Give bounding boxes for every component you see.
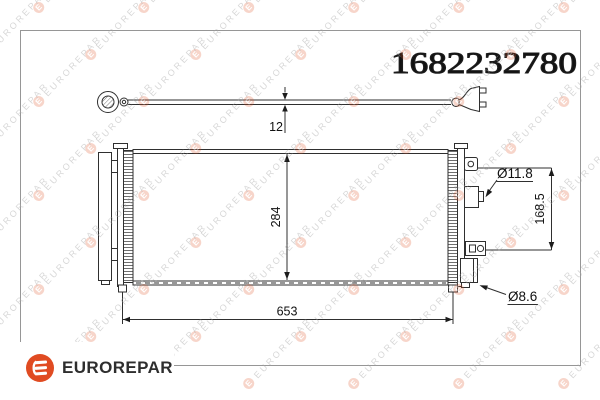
upper-port-fitting: [465, 187, 484, 208]
dim-core-height-label: 284: [269, 207, 283, 228]
header-left: [118, 148, 124, 287]
header-right-cap: [455, 144, 468, 149]
technical-drawing: 1682232780 12: [0, 0, 600, 400]
dim-lower-port-label: Ø8.6: [508, 289, 537, 304]
part-number: 1682232780: [391, 45, 577, 80]
pipe-end-fitting: [459, 87, 480, 112]
pipe-assembly: [98, 87, 487, 113]
fins-band-left: [124, 151, 134, 283]
pipe-flange-face: [102, 96, 114, 108]
brand-logo-text: EUROREPAR: [62, 358, 173, 378]
mount-tab: [465, 158, 478, 171]
lower-port-block: [466, 242, 486, 256]
dimension-pipe-diameter: 12: [269, 87, 288, 134]
condenser-body: [99, 144, 486, 293]
lower-bracket: [461, 259, 478, 288]
dim-port-spacing-label: 168.5: [533, 193, 547, 224]
dimension-core-width: 653: [123, 292, 454, 324]
label-upper-port: Ø11.8: [486, 166, 534, 197]
dim-pipe-diameter-label: 12: [269, 120, 283, 134]
dim-upper-port-label: Ø11.8: [497, 166, 533, 181]
foot-right: [449, 285, 458, 292]
foot-left: [119, 285, 127, 292]
condenser-core: [133, 150, 448, 286]
receiver-drier: [99, 153, 112, 281]
eurorepar-logo-icon: [24, 352, 56, 384]
label-lower-port: Ø8.6: [480, 285, 539, 304]
drawing-page: 1682232780 12: [0, 0, 600, 400]
pipe-eyelet: [120, 98, 128, 106]
fins-band-right: [448, 151, 458, 283]
header-left-cap: [114, 144, 128, 149]
dim-core-width-label: 653: [277, 305, 298, 319]
brand-logo: EUROREPAR: [16, 342, 174, 394]
